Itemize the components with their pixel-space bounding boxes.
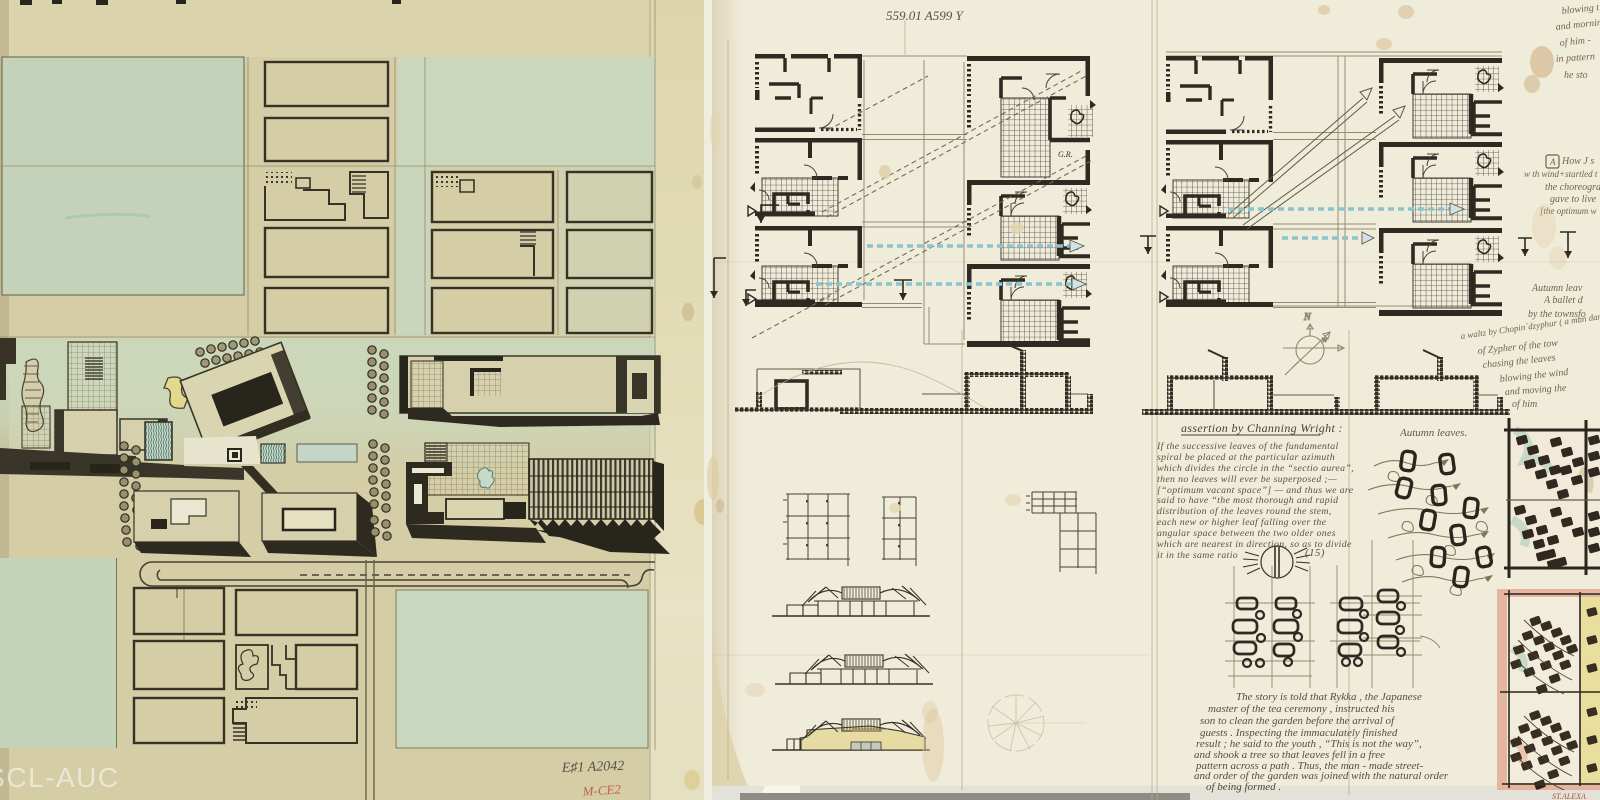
svg-text:ST.ALEXA: ST.ALEXA xyxy=(1552,792,1586,800)
